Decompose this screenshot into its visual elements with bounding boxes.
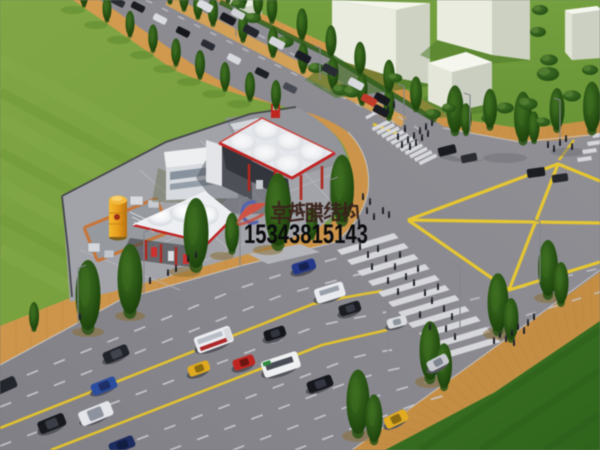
svg-text:15343815143: 15343815143 xyxy=(244,221,368,250)
